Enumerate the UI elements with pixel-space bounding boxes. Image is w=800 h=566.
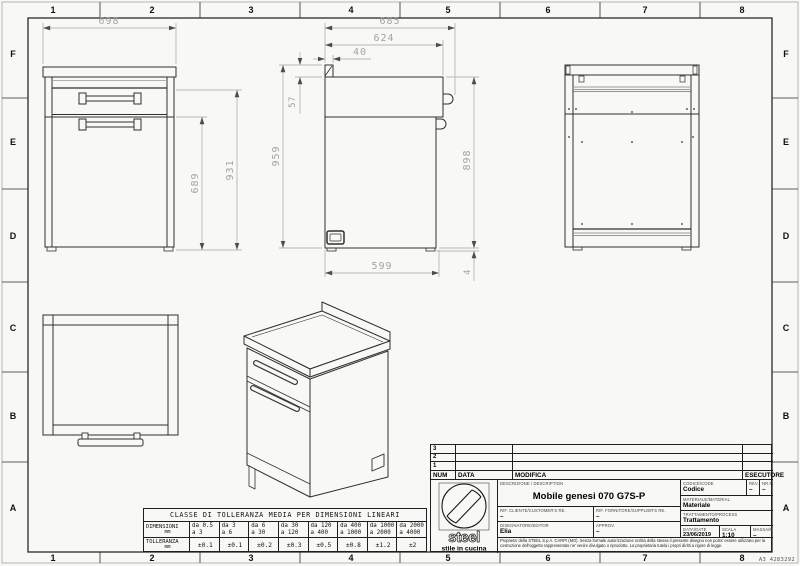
dim-side-top-section: 57 xyxy=(288,96,298,108)
trattamento-cell: TRATTAMENTO/PROCESS Trattamento xyxy=(681,511,773,526)
grid-col-top-4: 4 xyxy=(348,5,353,15)
grid-col-bot-8: 8 xyxy=(739,553,744,563)
steel-logo: steel stile in cucina xyxy=(431,480,498,553)
description-cell: DESCRIZIONE / DESCRIPTION Mobile genesi … xyxy=(498,480,681,507)
rif-cliente-cell: RIF. CLIENTE/CUSTOMER'S RE. – xyxy=(498,507,594,522)
logo-wordmark: steel xyxy=(448,529,480,546)
dim-front-height-door: 689 xyxy=(190,172,201,193)
grid-col-top-3: 3 xyxy=(248,5,253,15)
scala-cell: SCALA 1:10 xyxy=(720,526,751,538)
side-door-handle xyxy=(436,119,446,129)
front-drawer-handle xyxy=(79,93,141,104)
rev-num-2: 2 xyxy=(433,453,436,461)
codice-cell: CODICE/CODE Codice xyxy=(681,480,747,496)
tolerance-table-title: CLASSE DI TOLLERANZA MEDIA PER DIMENSION… xyxy=(144,509,426,522)
rev-num-3: 3 xyxy=(433,445,436,453)
title-block: 3 2 1 NUM DATA MODIFICA ESECUTORE steel … xyxy=(430,444,772,552)
description-label: DESCRIZIONE / DESCRIPTION xyxy=(498,480,680,486)
side-badge xyxy=(327,231,344,244)
logo-cell: steel stile in cucina xyxy=(431,480,498,553)
dim-side-backsplash: 40 xyxy=(353,47,367,58)
grid-row-right-C: C xyxy=(783,323,790,333)
rev-hdr-esecutore: ESECUTORE xyxy=(745,471,784,480)
grid-row-left-C: C xyxy=(10,323,17,333)
grid-row-right-A: A xyxy=(783,503,790,513)
grid-row-left-E: E xyxy=(10,137,16,147)
tol-tol-unit: mm xyxy=(146,545,189,551)
grid-col-bot-7: 7 xyxy=(642,553,647,563)
disclaimer-text: Proprieta' della STEEL S.p.A. CARPI (MO)… xyxy=(498,538,773,550)
grid-row-right-D: D xyxy=(783,231,790,241)
rev-hdr-modifica: MODIFICA xyxy=(515,471,546,480)
grid-col-top-7: 7 xyxy=(642,5,647,15)
grid-col-top-6: 6 xyxy=(545,5,550,15)
rif-fornitore-cell: RIF. FORNITORE/SUPPLIER'S RE. – xyxy=(594,507,681,522)
grid-col-bot-5: 5 xyxy=(445,553,450,563)
drawing-sheet: 1 2 3 4 5 6 7 8 1 2 3 4 5 6 7 8 F E D C … xyxy=(0,0,800,566)
grid-col-bot-4: 4 xyxy=(348,553,353,563)
materiale-cell: MATERIALE/MATERIAL Materiale xyxy=(681,496,773,511)
grid-col-top-5: 5 xyxy=(445,5,450,15)
grid-col-bot-6: 6 xyxy=(545,553,550,563)
side-drawer-handle xyxy=(443,94,453,104)
plan-view xyxy=(43,315,178,446)
dim-side-foot: 4 xyxy=(463,269,473,275)
grid-row-right-F: F xyxy=(783,49,789,59)
grid-col-bot-3: 3 xyxy=(248,553,253,563)
isometric-view xyxy=(244,302,390,497)
rev-num-1: 1 xyxy=(433,462,436,470)
dim-front-width: 698 xyxy=(98,16,119,27)
grid-row-left-B: B xyxy=(10,411,17,421)
grid-row-left-A: A xyxy=(10,503,17,513)
grid-row-right-B: B xyxy=(783,411,790,421)
data-cell: DATA/DATE 23/06/2019 xyxy=(681,526,720,538)
dim-side-height-total: 959 xyxy=(271,145,282,166)
tolerance-values-row: TOLLERANZA mm ±0.1 ±0.1 ±0.2 ±0.3 ±0.5 ±… xyxy=(144,538,426,552)
dim-side-depth-bottom: 599 xyxy=(371,261,392,272)
side-view-dimensions xyxy=(279,23,479,281)
side-view xyxy=(325,65,453,251)
grid-row-left-F: F xyxy=(10,49,16,59)
rev-hdr-num: NUM xyxy=(433,471,447,480)
dim-side-depth-body: 624 xyxy=(373,33,394,44)
logo-tagline: stile in cucina xyxy=(442,546,487,553)
rev-cell: REV. – xyxy=(747,480,760,496)
grid-row-left-D: D xyxy=(10,231,17,241)
tolerance-dimension-row: DIMENSIONI mm da 0.5a 3 da 3a 6 da 6a 30… xyxy=(144,522,426,538)
rev-hdr-data: DATA xyxy=(458,471,475,480)
dim-side-depth-total: 685 xyxy=(379,16,400,27)
approv-cell: APPROV. – xyxy=(594,522,681,538)
nrpz-cell: NR.PZ. – xyxy=(760,480,773,496)
tolerance-table: CLASSE DI TOLLERANZA MEDIA PER DIMENSION… xyxy=(143,508,427,552)
disclaimer-cell: Proprieta' della STEEL S.p.A. CARPI (MO)… xyxy=(498,538,773,553)
dim-side-height-body: 898 xyxy=(462,149,473,170)
massa-cell: MASSA/MASS kg – xyxy=(751,526,773,538)
disegnatore-cell: DISEGNATORE/EDITOR Elia xyxy=(498,522,594,538)
grid-row-right-E: E xyxy=(783,137,789,147)
grid-col-top-1: 1 xyxy=(50,5,55,15)
rear-view xyxy=(565,65,699,250)
front-view xyxy=(43,67,176,251)
rear-view-holes xyxy=(568,108,695,225)
grid-col-top-2: 2 xyxy=(149,5,154,15)
dim-front-height-body: 931 xyxy=(225,159,236,180)
grid-col-top-8: 8 xyxy=(739,5,744,15)
front-view-dimensions xyxy=(43,23,242,250)
drawing-title: Mobile genesi 070 G7S-P xyxy=(498,491,680,502)
front-door-handle xyxy=(79,119,141,130)
grid-col-bot-1: 1 xyxy=(50,553,55,563)
tol-dim-unit: mm xyxy=(146,530,189,536)
grid-col-bot-2: 2 xyxy=(149,553,154,563)
sheet-code: A3 4283292 xyxy=(759,557,795,563)
